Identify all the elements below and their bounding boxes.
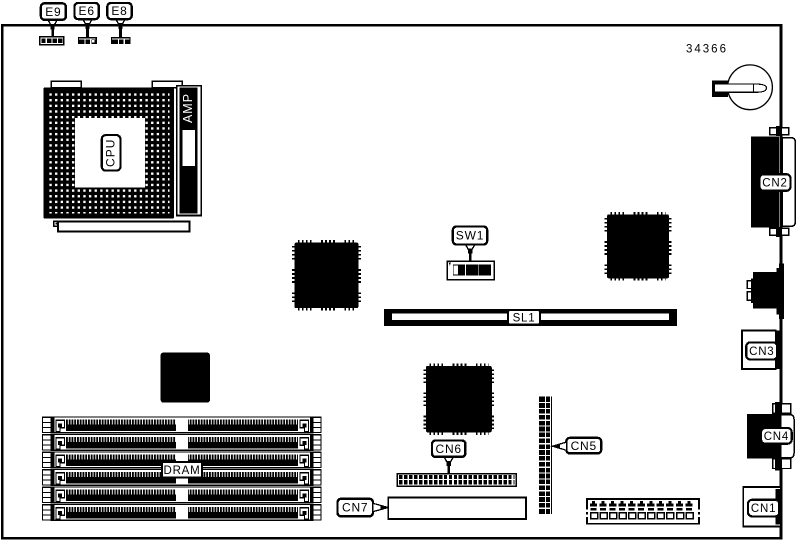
- svg-text:34366: 34366: [686, 44, 728, 56]
- svg-text:E6: E6: [79, 4, 95, 18]
- svg-text:E8: E8: [111, 4, 127, 18]
- svg-text:CN1: CN1: [751, 503, 776, 515]
- svg-text:DRAM: DRAM: [163, 465, 200, 477]
- svg-text:CN5: CN5: [571, 439, 597, 453]
- svg-text:SL1: SL1: [513, 313, 536, 325]
- svg-text:CN2: CN2: [762, 178, 787, 190]
- svg-text:E9: E9: [45, 5, 61, 19]
- svg-text:SW1: SW1: [456, 229, 484, 243]
- svg-text:CN7: CN7: [342, 501, 368, 515]
- svg-text:CN3: CN3: [749, 346, 774, 358]
- svg-text:CN4: CN4: [764, 431, 789, 443]
- svg-text:CN6: CN6: [435, 442, 461, 456]
- svg-text:AMP: AMP: [181, 93, 195, 123]
- svg-text:CPU: CPU: [103, 139, 117, 167]
